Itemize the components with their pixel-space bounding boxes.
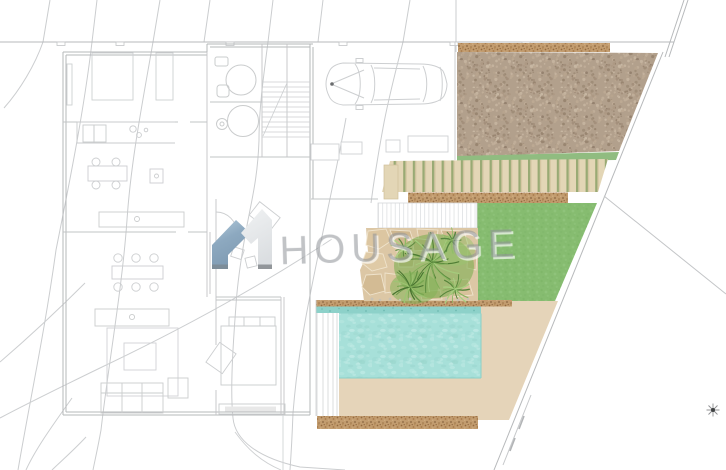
svg-text:HOUSAGE: HOUSAGE (279, 222, 521, 274)
